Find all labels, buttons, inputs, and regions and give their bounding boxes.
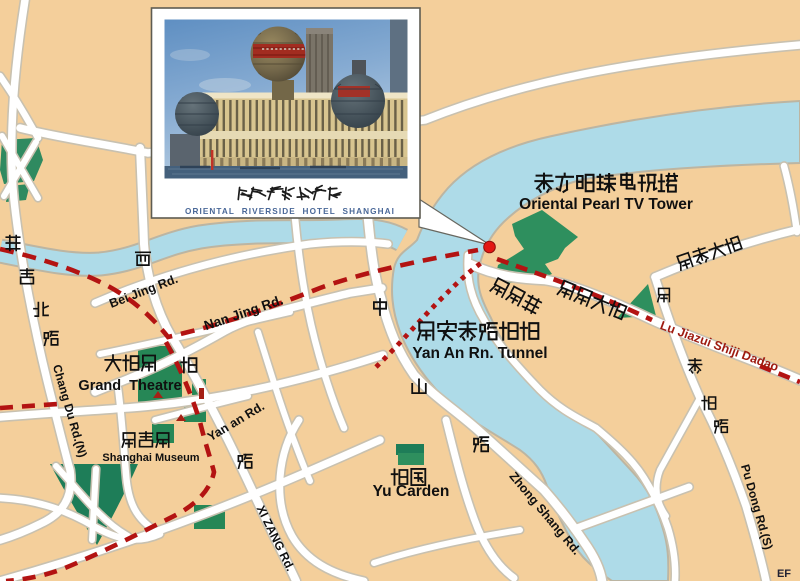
svg-text:Shanghai Museum: Shanghai Museum	[102, 452, 199, 464]
svg-text:Oriental Pearl TV Tower: Oriental Pearl TV Tower	[519, 196, 693, 213]
svg-text:EF: EF	[777, 568, 791, 580]
svg-text:Yan An Rn. Tunnel: Yan An Rn. Tunnel	[412, 345, 547, 362]
svg-text:Yu Carden: Yu Carden	[373, 483, 450, 500]
svg-text:ORIENTAL RIVERSIDE HOTEL SH: ORIENTAL RIVERSIDE HOTEL SHANGHAI	[185, 207, 395, 216]
svg-text:Grand Theatre: Grand Theatre	[78, 378, 181, 394]
